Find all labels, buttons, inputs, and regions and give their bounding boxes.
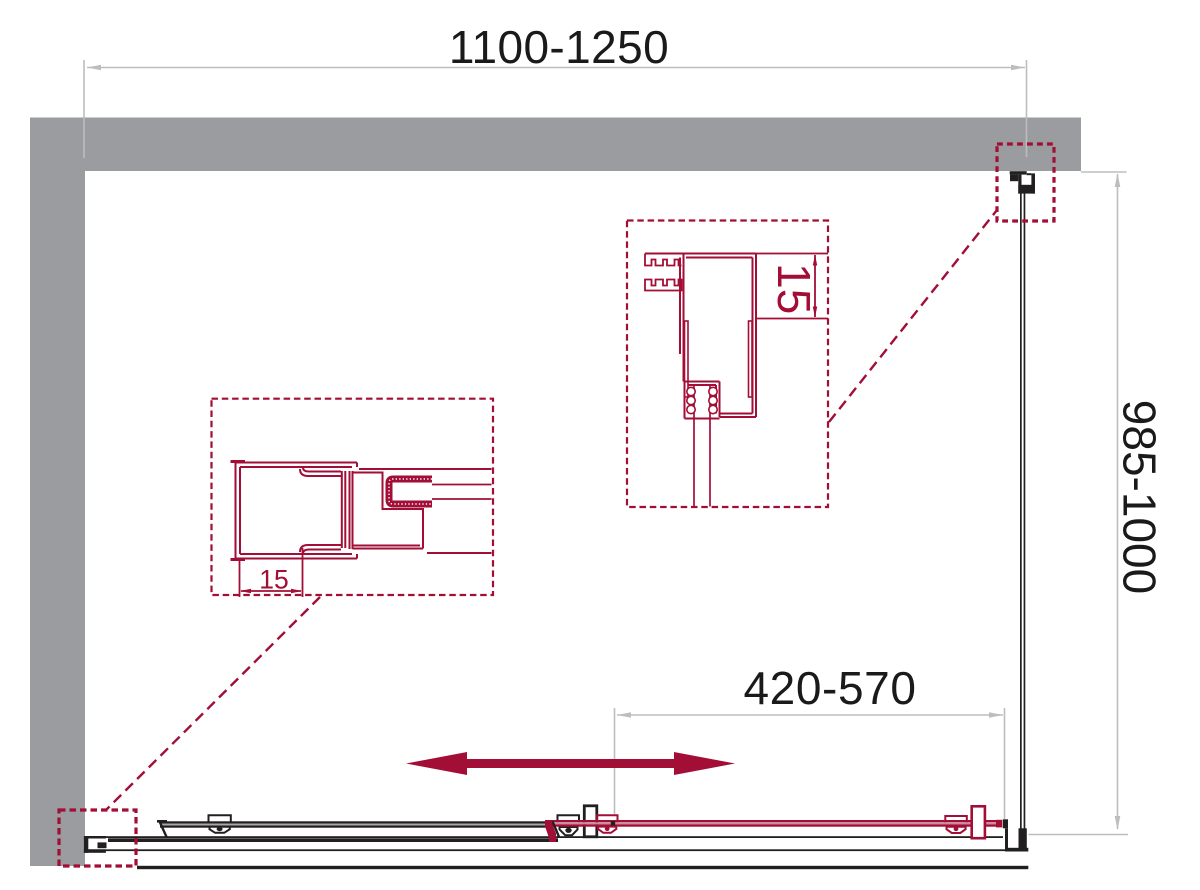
svg-text:15: 15 xyxy=(768,263,820,314)
svg-text:1100-1250: 1100-1250 xyxy=(449,21,669,73)
svg-text:420-570: 420-570 xyxy=(743,662,916,714)
svg-text:985-1000: 985-1000 xyxy=(1114,400,1166,594)
svg-text:15: 15 xyxy=(259,565,288,595)
